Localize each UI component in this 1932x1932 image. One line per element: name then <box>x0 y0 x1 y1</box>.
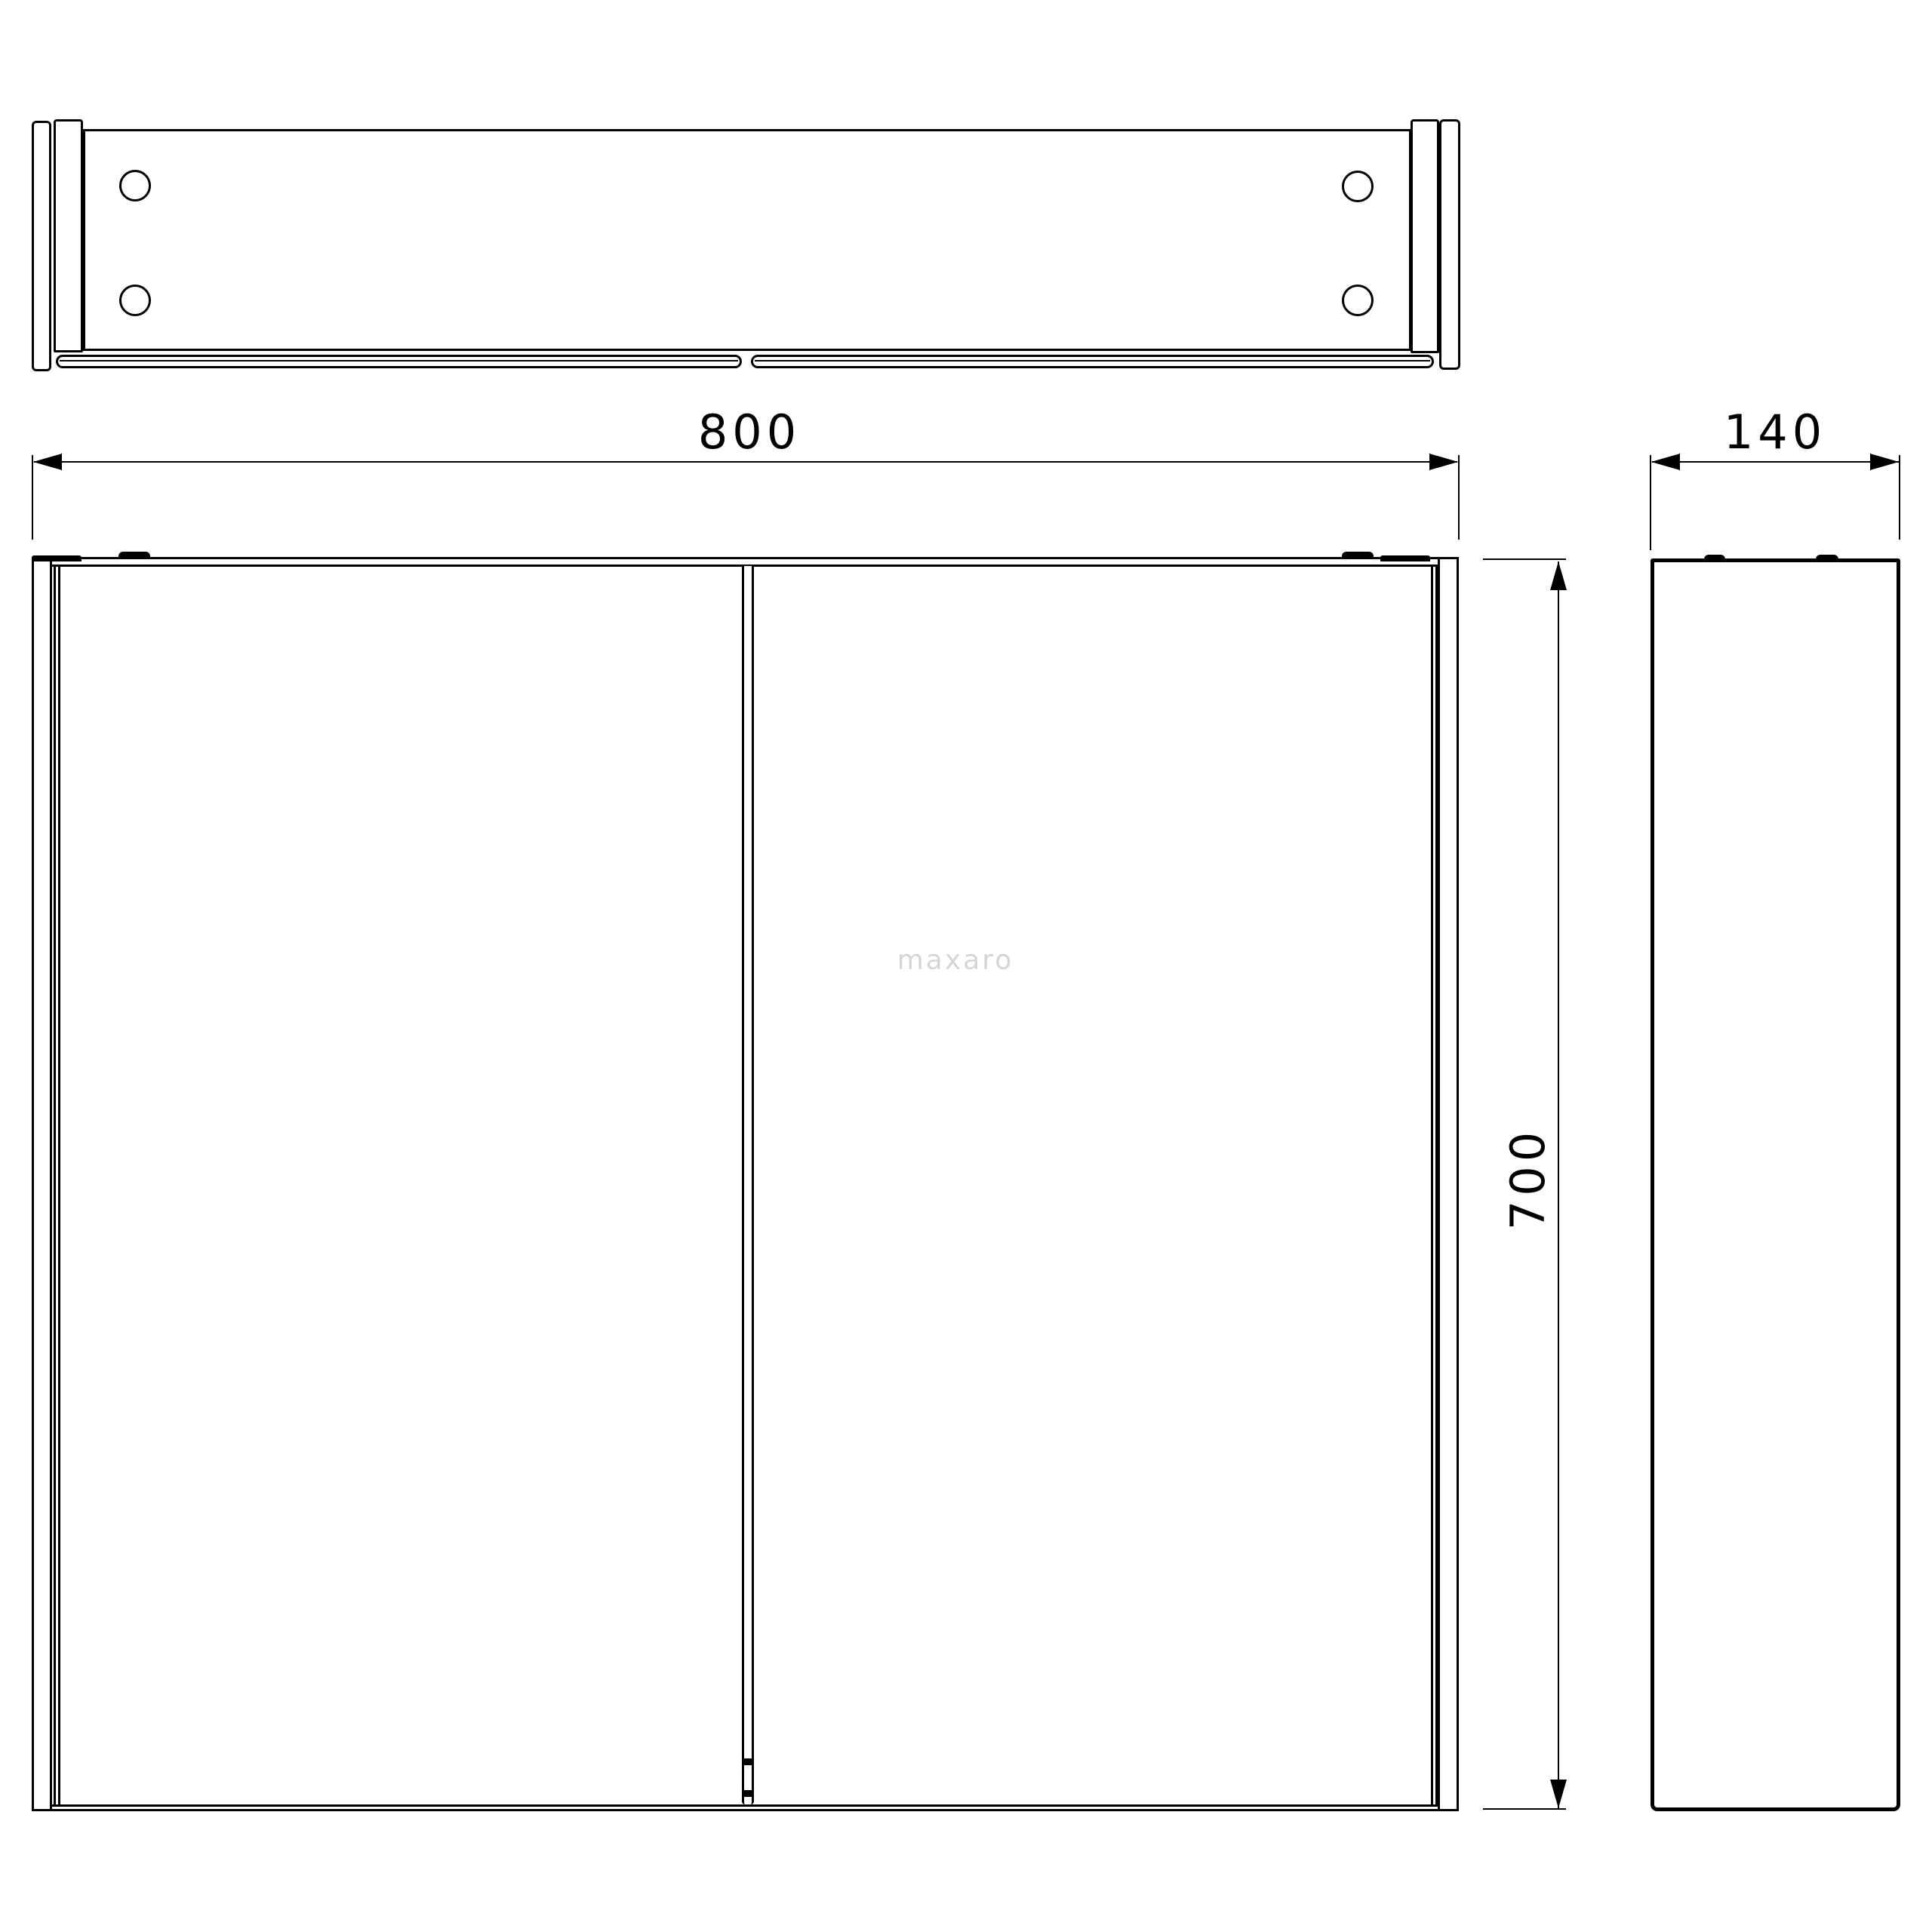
front-view-right-side-panel <box>1438 557 1459 1811</box>
watermark: maxaro <box>880 945 1031 976</box>
front-view-top-cap-right <box>1380 555 1430 561</box>
dim-width-extension-right <box>1458 455 1460 540</box>
top-view-mount-hole <box>119 285 151 316</box>
top-view-cabinet-body <box>83 129 1411 351</box>
top-view-mount-hole <box>1342 285 1374 316</box>
dim-depth-arrow-left-icon <box>1651 454 1680 470</box>
top-view-left-door-edge <box>56 355 742 368</box>
top-view-left-door-edge-line <box>60 360 738 361</box>
front-view-top-cap-left <box>32 555 82 561</box>
top-view-left-outer-bracket <box>32 121 51 371</box>
top-view-right-door-edge-line <box>755 360 1430 361</box>
top-view-mount-hole <box>1342 171 1374 202</box>
dim-height-arrow-down-icon <box>1550 1780 1567 1808</box>
dim-width-line <box>34 461 1457 463</box>
top-view-right-door-edge <box>751 355 1434 368</box>
dim-width-arrow-right-icon <box>1429 454 1458 470</box>
dim-depth-label: 140 <box>1700 405 1850 460</box>
dim-height-label: 700 <box>1500 1103 1553 1254</box>
dim-width-label: 800 <box>674 405 825 460</box>
side-view-hinge-bump <box>1704 555 1725 560</box>
top-view-right-outer-bracket <box>1439 119 1460 370</box>
dim-depth-extension-right <box>1899 455 1900 540</box>
drawing-canvas: 800 140 700 maxaro <box>0 0 1932 1932</box>
front-view-left-door-edge-line <box>54 566 60 1805</box>
top-view-mount-hole <box>119 170 151 202</box>
dim-height-extension-top <box>1483 558 1566 560</box>
top-view-right-inner-bracket <box>1411 119 1439 353</box>
top-view-left-inner-bracket <box>54 119 83 352</box>
side-view-hinge-bump <box>1816 555 1838 560</box>
side-view-outline <box>1651 558 1900 1811</box>
dim-height-extension-bottom <box>1483 1808 1566 1810</box>
dim-height-arrow-up-icon <box>1550 561 1567 590</box>
front-view-hinge-bump-left <box>118 552 150 559</box>
front-view-door-split <box>742 566 754 1804</box>
front-view-hinge-bump-right <box>1342 552 1374 559</box>
dim-depth-line <box>1652 461 1900 463</box>
front-view-right-door-edge-line <box>1431 566 1438 1805</box>
front-view-bottom-inner-line <box>52 1804 1438 1807</box>
dim-depth-arrow-right-icon <box>1870 454 1899 470</box>
dim-width-arrow-left-icon <box>33 454 62 470</box>
front-view-door-split-tick <box>744 1758 752 1765</box>
front-view-door-split-tick <box>744 1790 752 1797</box>
front-view-left-side-panel <box>32 557 52 1811</box>
dim-height-line <box>1558 561 1559 1808</box>
